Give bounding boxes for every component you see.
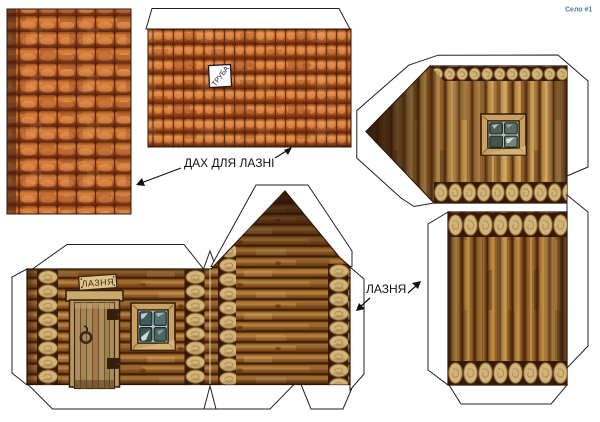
svg-text:Село #1: Село #1 (565, 7, 592, 14)
svg-text:ЛАЗНЯ: ЛАЗНЯ (366, 282, 406, 296)
svg-text:ДАХ ДЛЯ ЛАЗНІ: ДАХ ДЛЯ ЛАЗНІ (184, 156, 274, 170)
